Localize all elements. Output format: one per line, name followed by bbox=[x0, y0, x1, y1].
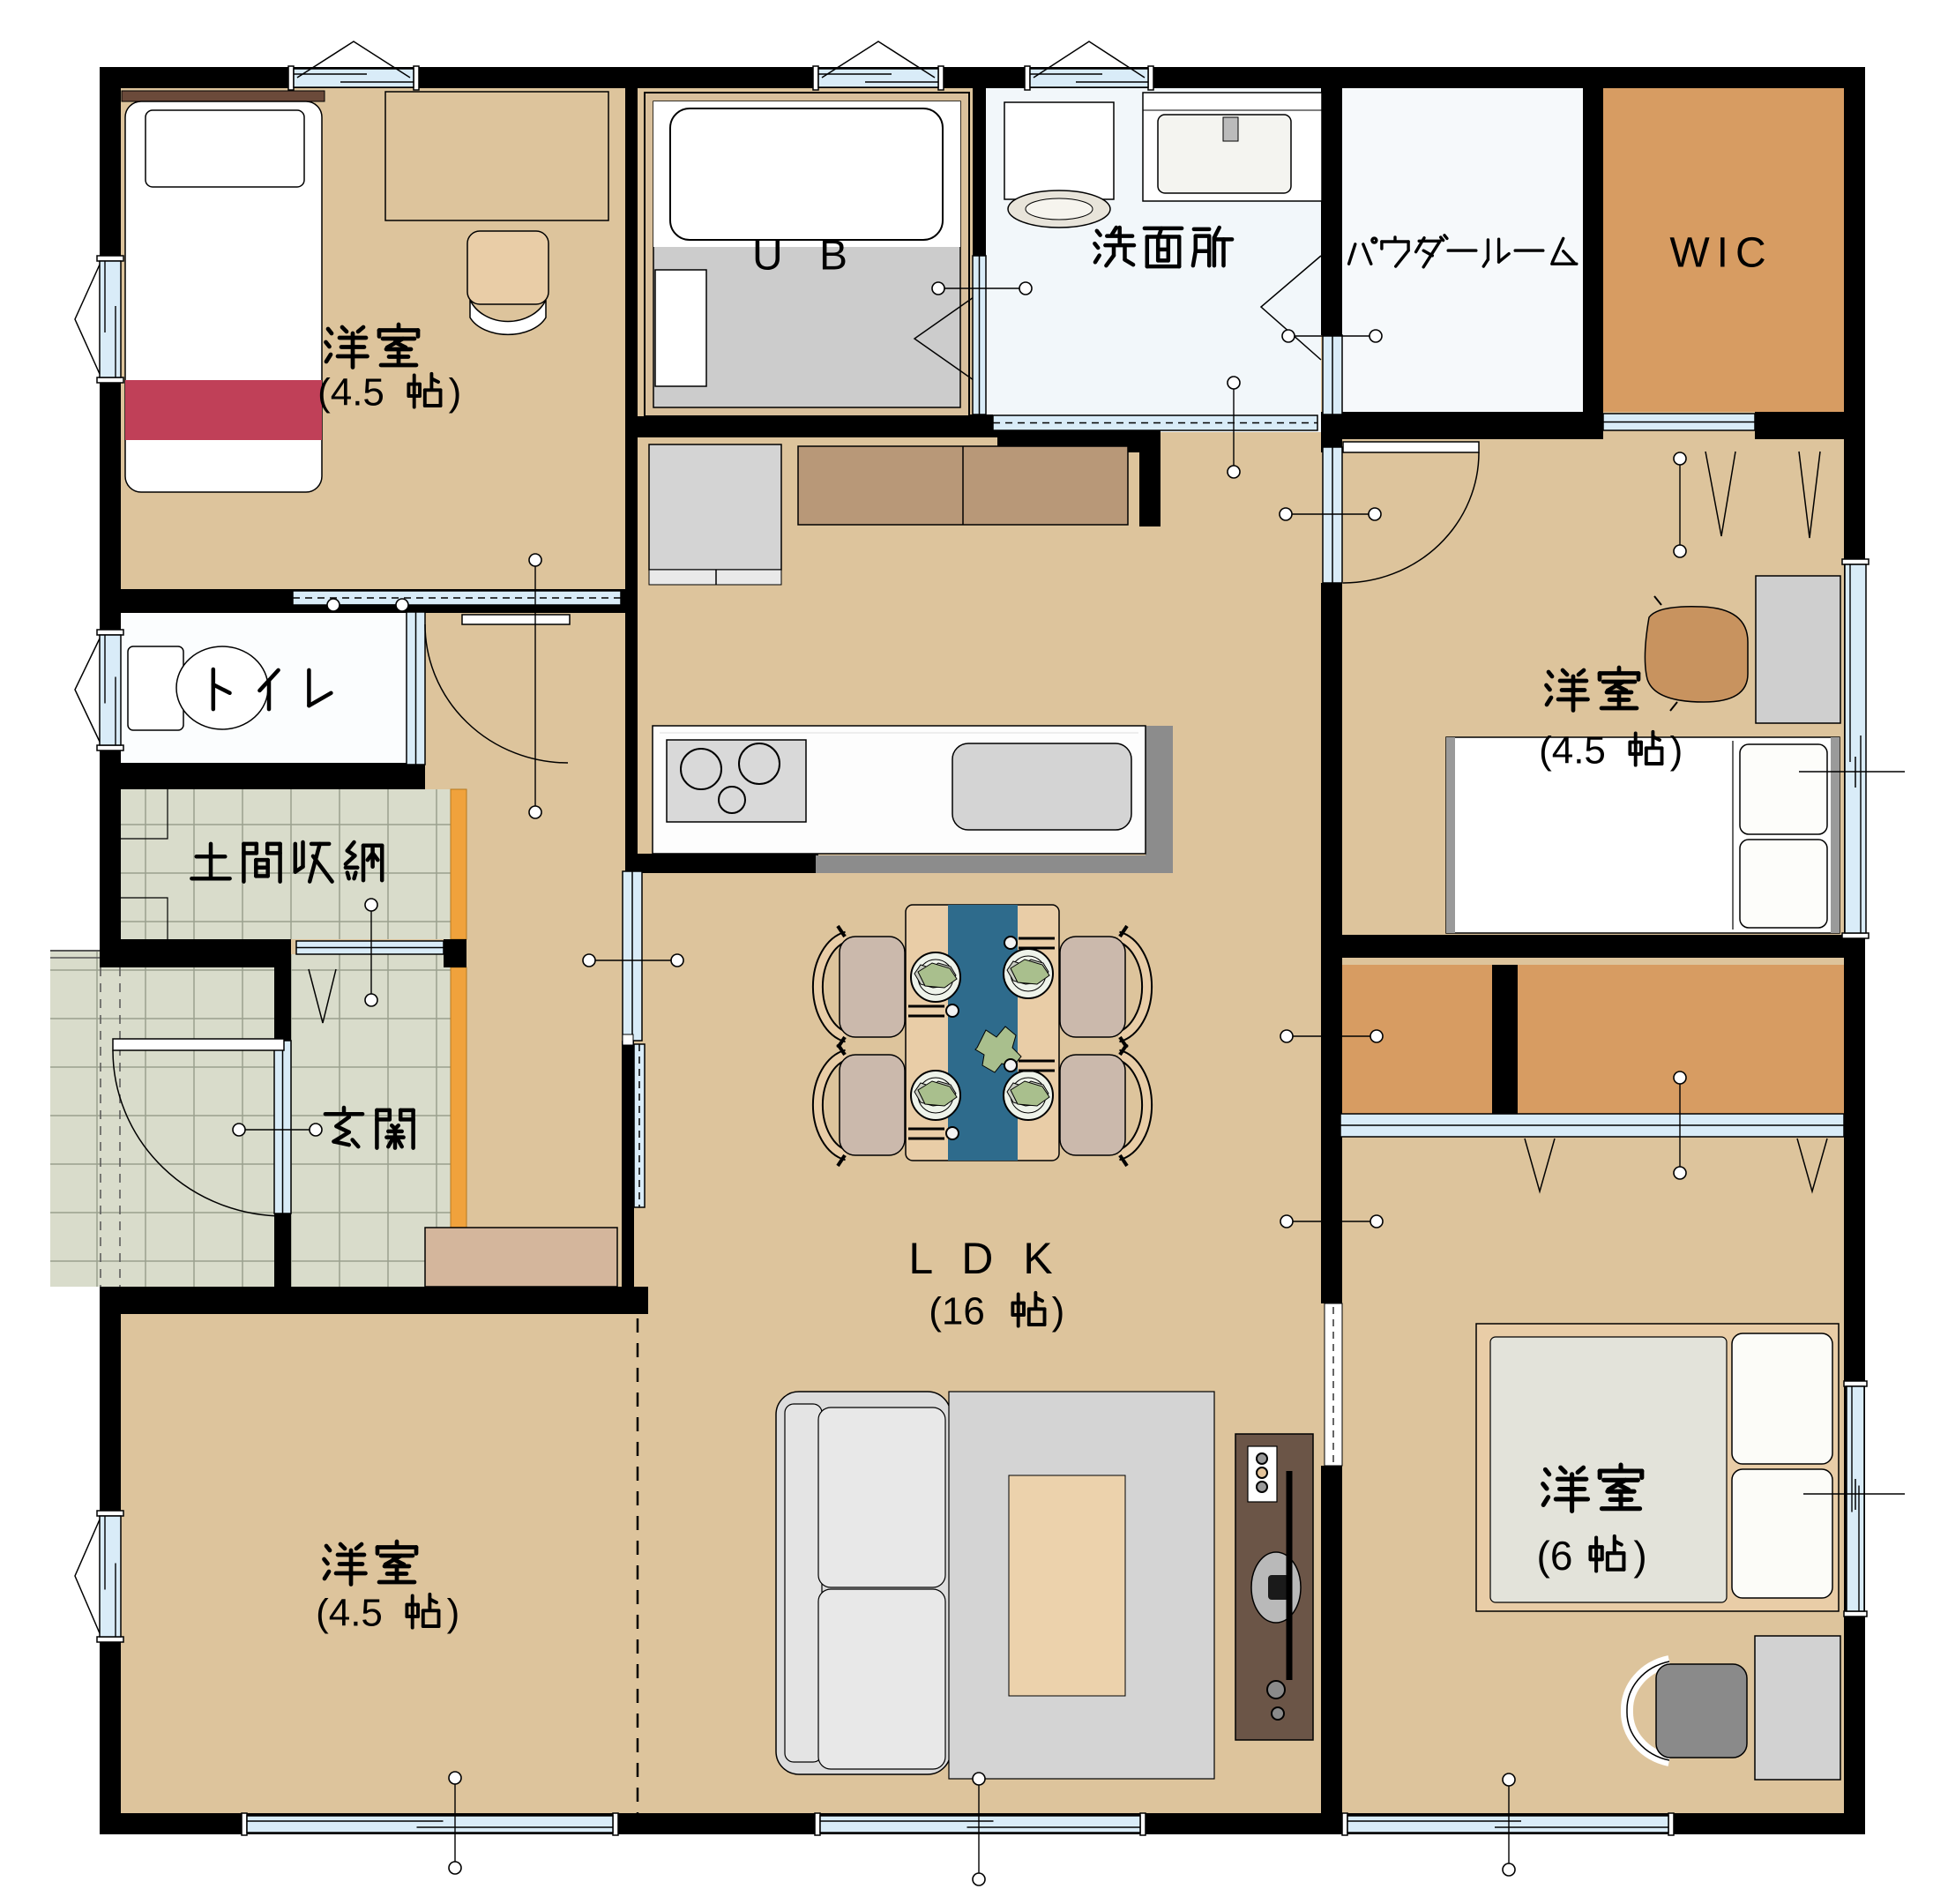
svg-text:WIC: WIC bbox=[1669, 230, 1773, 277]
svg-text:(16: (16 bbox=[929, 1290, 985, 1333]
svg-text:): ) bbox=[1633, 1533, 1646, 1579]
svg-text:U B: U B bbox=[752, 233, 860, 280]
svg-text:L D K: L D K bbox=[908, 1234, 1061, 1283]
svg-text:(4.5: (4.5 bbox=[1539, 729, 1606, 773]
svg-text:): ) bbox=[1670, 729, 1683, 773]
svg-text:(6: (6 bbox=[1537, 1533, 1573, 1579]
svg-text:): ) bbox=[447, 1592, 460, 1635]
svg-text:(4.5: (4.5 bbox=[316, 1592, 383, 1635]
svg-text:(4.5: (4.5 bbox=[317, 371, 384, 414]
svg-text:): ) bbox=[449, 371, 462, 414]
svg-text:): ) bbox=[1052, 1290, 1065, 1333]
